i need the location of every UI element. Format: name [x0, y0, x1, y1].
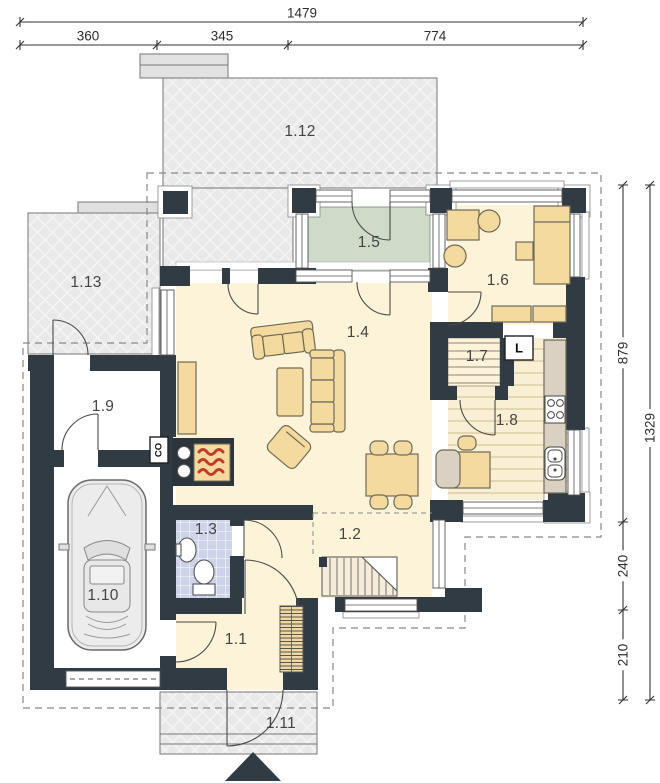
dining-table	[366, 454, 418, 496]
wall	[428, 268, 448, 292]
room-label-1-1: 1.1	[225, 631, 247, 649]
wardrobe	[280, 606, 303, 672]
wall	[566, 277, 585, 337]
chair	[394, 495, 412, 509]
wall	[163, 598, 242, 614]
terrace-step	[78, 202, 162, 214]
wall	[430, 386, 457, 400]
wall	[230, 520, 244, 526]
wall-exterior-west	[30, 355, 54, 690]
mirror	[145, 544, 155, 550]
chair	[478, 210, 500, 232]
wall	[160, 505, 313, 520]
bed	[534, 206, 570, 284]
fridge-label: L	[515, 341, 523, 356]
window	[161, 290, 174, 355]
dim-right-segment-2: 240	[616, 551, 631, 582]
room-label-1-3: 1.3	[195, 521, 217, 539]
room-label-1-4: 1.4	[347, 324, 369, 342]
staircase	[319, 557, 397, 596]
room-label-1-10: 1.10	[87, 587, 118, 605]
wall	[566, 337, 585, 430]
chair	[444, 245, 466, 267]
room-label-1-13: 1.13	[70, 274, 101, 292]
wall	[495, 386, 508, 400]
wall	[90, 355, 163, 371]
toilet-bowl	[194, 560, 214, 584]
toilet-tank	[193, 584, 215, 595]
floor-plan-drawing	[0, 0, 660, 783]
wall	[222, 268, 230, 284]
room-label-1-7: 1.7	[466, 348, 488, 366]
wall	[163, 668, 227, 690]
fireplace	[172, 438, 234, 486]
porch-column	[163, 191, 188, 214]
boiler-label: CO	[154, 443, 165, 457]
newel-post	[319, 557, 327, 567]
mirror	[59, 544, 69, 550]
chair	[436, 450, 460, 488]
room-label-1-2: 1.2	[339, 526, 361, 544]
tap	[176, 544, 181, 556]
wall	[543, 500, 585, 522]
dim-right-segment-1: 879	[616, 338, 631, 369]
room-label-1-8: 1.8	[496, 412, 518, 430]
porch-column	[292, 188, 316, 213]
chair	[370, 441, 388, 455]
wall	[258, 268, 294, 284]
room-label-1-11: 1.11	[266, 715, 296, 733]
wall	[230, 556, 244, 598]
chair	[370, 495, 388, 509]
entrance-arrow-icon	[225, 752, 281, 781]
wall-corner	[430, 188, 452, 213]
room-label-1-9: 1.9	[92, 398, 114, 416]
wall-corner	[445, 588, 482, 612]
nightstand	[516, 242, 533, 260]
desk	[447, 210, 479, 240]
dim-top-segment-3: 774	[420, 29, 451, 44]
dim-top-total: 1479	[283, 6, 321, 21]
room-label-1-12: 1.12	[284, 123, 315, 141]
sunroof	[90, 566, 124, 584]
chair	[394, 441, 412, 455]
dim-right-segment-3: 210	[616, 640, 631, 671]
sofa	[310, 350, 345, 432]
sink	[545, 447, 565, 480]
wall	[28, 355, 53, 371]
car	[59, 480, 155, 650]
wall	[160, 266, 190, 286]
coffee-table	[277, 368, 303, 416]
chimney-block	[140, 54, 228, 65]
dim-right-total: 1329	[643, 409, 658, 447]
dim-top-segment-1: 360	[73, 29, 104, 44]
log-store	[178, 447, 191, 460]
dim-top-segment-2: 345	[207, 29, 238, 44]
chair	[458, 436, 476, 450]
log-store	[178, 465, 191, 478]
room-label-1-5: 1.5	[358, 234, 380, 252]
sideboard	[178, 362, 196, 434]
wall	[160, 517, 176, 598]
room-label-1-6: 1.6	[487, 272, 509, 290]
wall	[430, 500, 463, 522]
cabinet	[492, 306, 531, 322]
cabinet	[533, 306, 566, 322]
wall	[54, 450, 64, 467]
floor-plan: 1479 360 345 774 879 240 210 1329 1.12 1…	[0, 0, 660, 783]
wall	[430, 322, 503, 338]
chimney-block	[140, 65, 228, 78]
